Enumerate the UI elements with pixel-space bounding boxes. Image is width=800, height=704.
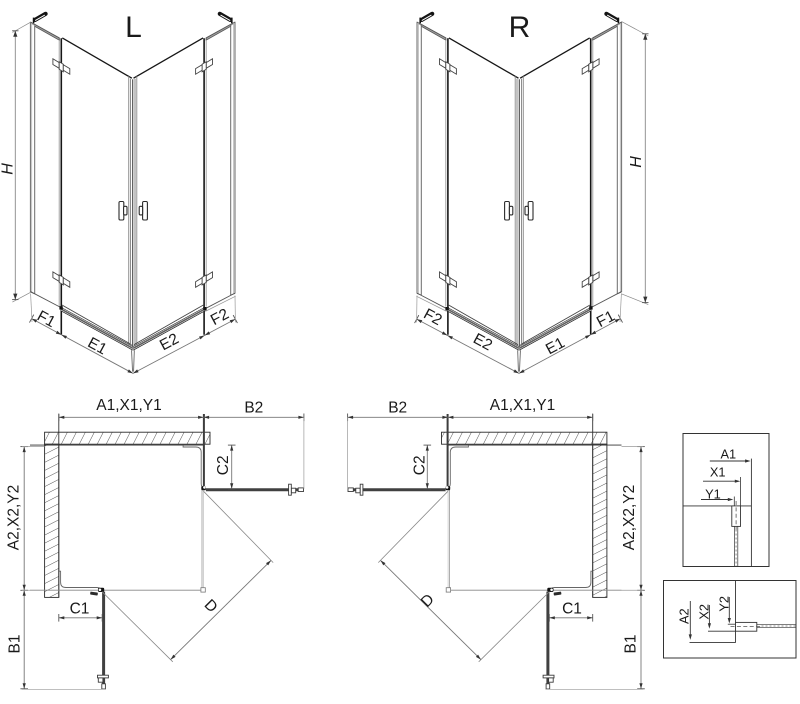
- svg-text:H: H: [0, 163, 17, 175]
- svg-text:C1: C1: [70, 601, 90, 618]
- svg-text:L: L: [125, 11, 142, 44]
- svg-text:A2: A2: [677, 608, 692, 624]
- svg-text:A2,X2,Y2: A2,X2,Y2: [621, 485, 638, 551]
- svg-text:C2: C2: [215, 455, 232, 475]
- svg-text:A1,X1,Y1: A1,X1,Y1: [490, 397, 556, 414]
- svg-text:A1: A1: [720, 446, 736, 461]
- svg-text:A1,X1,Y1: A1,X1,Y1: [96, 397, 162, 414]
- svg-text:Y1: Y1: [705, 486, 721, 501]
- svg-text:C2: C2: [412, 455, 429, 475]
- svg-text:B1: B1: [623, 635, 640, 654]
- svg-text:B2: B2: [244, 400, 263, 417]
- svg-text:B2: B2: [388, 400, 407, 417]
- svg-text:Y2: Y2: [717, 596, 732, 612]
- svg-text:R: R: [509, 11, 531, 44]
- svg-text:X1: X1: [710, 465, 726, 480]
- svg-text:B1: B1: [6, 635, 23, 654]
- svg-text:A2,X2,Y2: A2,X2,Y2: [6, 485, 23, 551]
- svg-text:X2: X2: [696, 604, 711, 620]
- svg-text:C1: C1: [562, 601, 582, 618]
- svg-text:H: H: [628, 156, 645, 168]
